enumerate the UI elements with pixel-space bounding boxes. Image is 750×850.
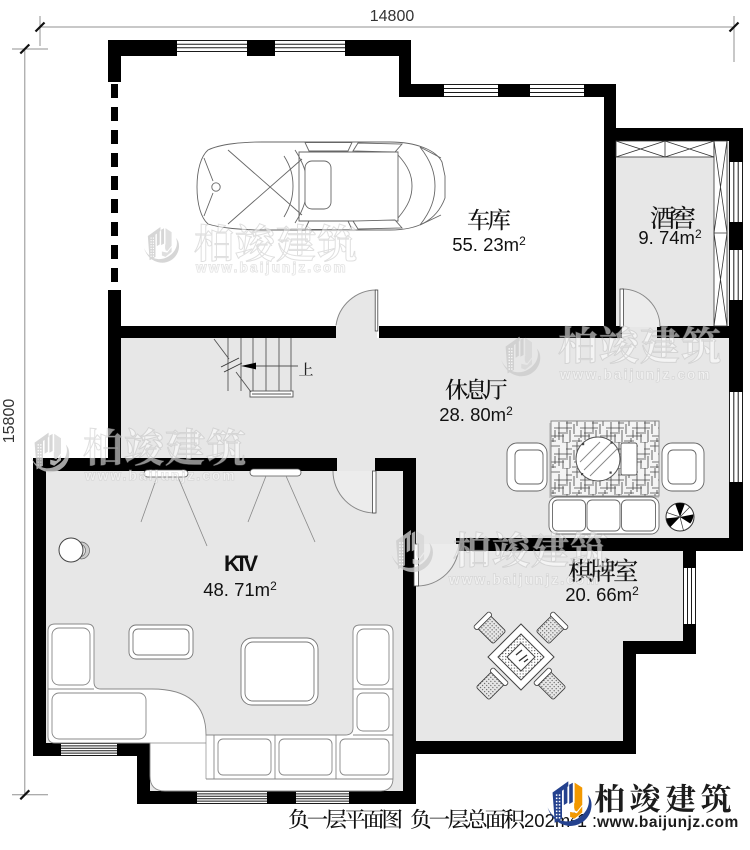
svg-text:55. 23m2: 55. 23m2 [452,234,526,255]
svg-text:15800: 15800 [1,399,18,444]
svg-text:www.baijunjz.com: www.baijunjz.com [448,572,601,587]
svg-text:www.baijunjz.com: www.baijunjz.com [84,468,237,483]
svg-text:14800: 14800 [370,8,415,25]
svg-text:www.baijunjz.com: www.baijunjz.com [559,367,712,382]
svg-text:28. 80m2: 28. 80m2 [439,404,513,425]
svg-text:9. 74m2: 9. 74m2 [638,227,702,248]
svg-text:KTV: KTV [224,551,258,576]
svg-text:48. 71m2: 48. 71m2 [203,579,277,600]
svg-text:www.baijunjz.com: www.baijunjz.com [596,814,739,831]
svg-text:20. 66m2: 20. 66m2 [565,584,639,605]
svg-text:www.baijunjz.com: www.baijunjz.com [195,260,348,275]
